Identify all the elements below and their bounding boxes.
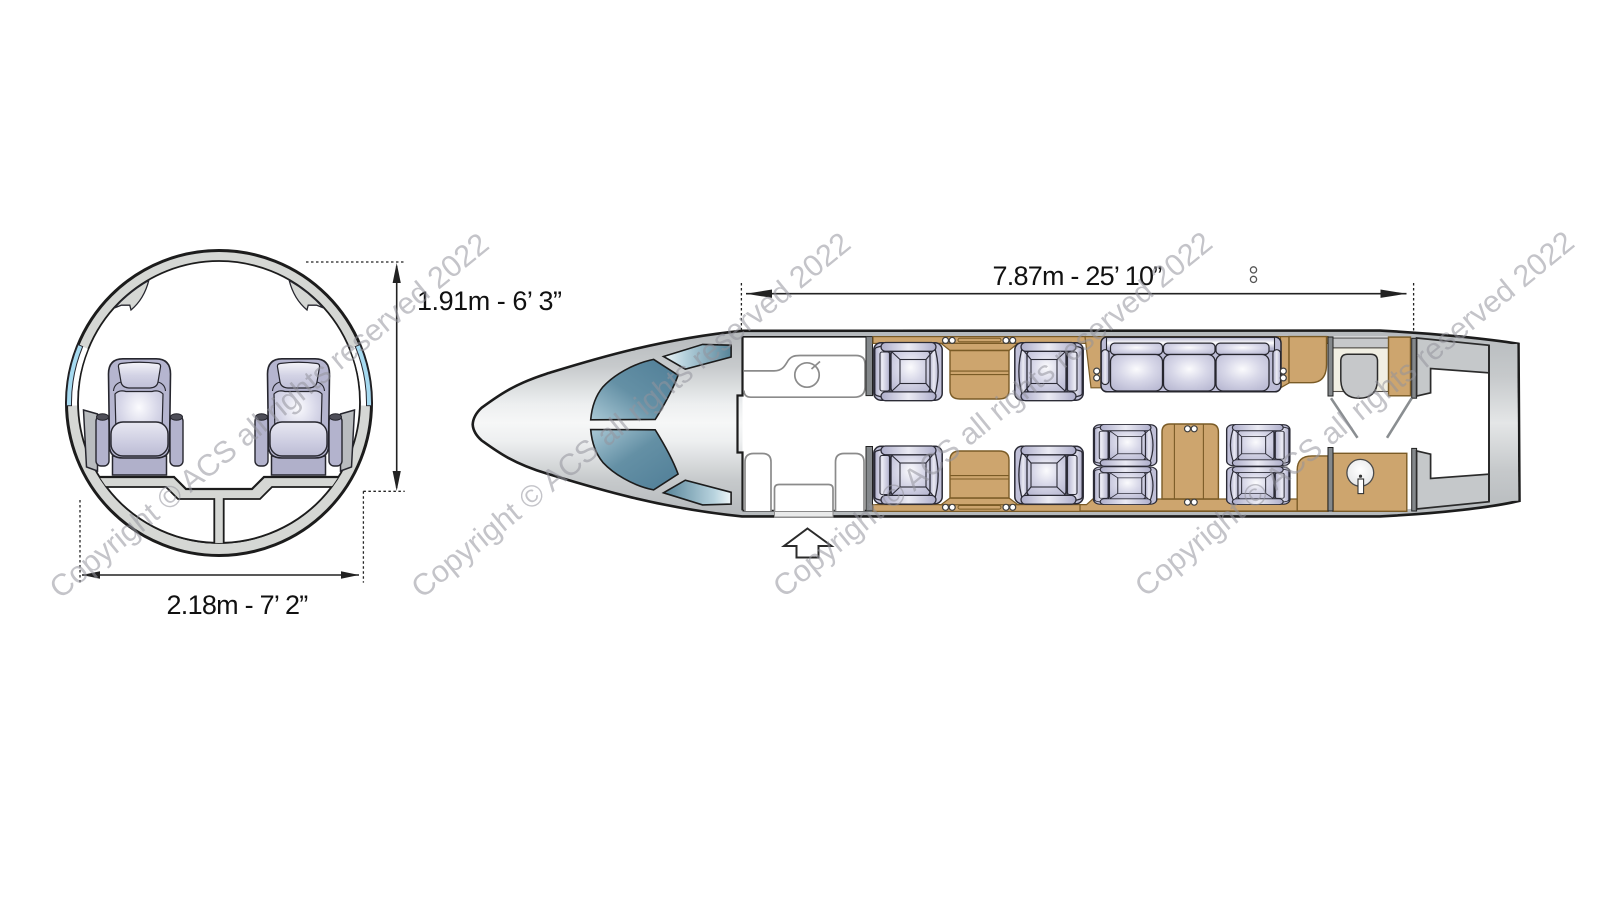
svg-text:2.18m - 7’ 2”: 2.18m - 7’ 2” [167, 590, 308, 620]
